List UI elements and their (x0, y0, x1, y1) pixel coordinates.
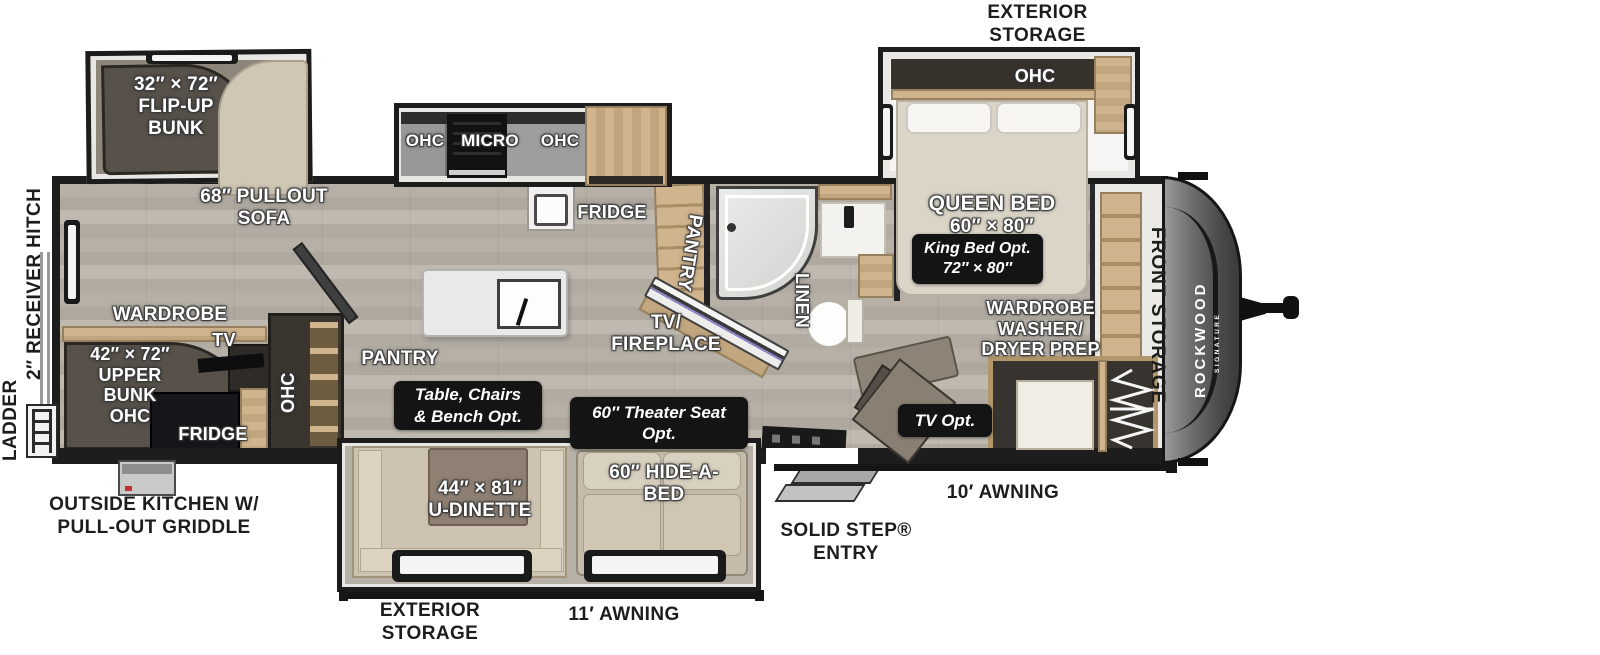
bed-pillow-left (906, 102, 992, 134)
entry-gap (766, 448, 858, 464)
rear-fridge-label: FRIDGE (168, 424, 258, 445)
brand-logo: ROCKWOOD (1192, 240, 1216, 440)
receiver-hitch-label: 2″ RECEIVER HITCH (24, 158, 50, 410)
island-pantry-label: PANTRY (350, 348, 450, 370)
dinette-window (392, 550, 532, 582)
bedroom-window-right (1124, 104, 1137, 160)
linen-label: LINEN (786, 248, 812, 352)
bedroom-window-left (880, 104, 893, 160)
linen-shelves (858, 254, 894, 298)
oven-handle (449, 170, 505, 175)
kitchen-ohc-right-label: OHC (532, 131, 588, 151)
rear-wardrobe-label: WARDROBE (95, 304, 245, 326)
bed-pillow-right (996, 102, 1082, 134)
awning-11-bar (345, 592, 757, 599)
outside-kitchen-griddle (118, 460, 176, 496)
hide-a-bed-label: 60″ HIDE-A- BED (590, 462, 738, 506)
wardrobe-washer-dryer-label: WARDROBE WASHER/ DRYER PREP (948, 298, 1133, 360)
rear-ohc-label: OHC (278, 358, 306, 428)
flip-up-bunk-label: 32″ × 72″ FLIP-UP BUNK (106, 74, 246, 140)
shower-head-icon (727, 223, 736, 232)
kitchen-fridge-cabinet (585, 106, 667, 186)
awning-10-label: 10′ AWNING (930, 482, 1076, 505)
hitch-jack-knob (1283, 296, 1299, 319)
rv-floorplan: ROCKWOOD SIGNATURE FRONT STORAGE OHC QUE… (0, 0, 1600, 655)
front-storage-label: FRONT STORAGE (1142, 196, 1168, 436)
awning-10-knob (1166, 461, 1177, 473)
island-sink (497, 279, 561, 329)
rear-ohc-shelves (310, 322, 338, 446)
cap-bottom-tab (1178, 458, 1208, 466)
wardrobe-divider (1098, 360, 1107, 452)
toilet-tank (846, 298, 864, 344)
pullout-sofa-label: 68″ PULLOUT SOFA (185, 186, 343, 230)
solid-step-lower (774, 484, 865, 502)
vanity-ohc (818, 184, 892, 200)
ladder-icon (26, 404, 58, 458)
kitchen-sink (534, 194, 568, 226)
awning-10-bar (774, 464, 1170, 471)
washer-prep-box (1016, 380, 1094, 450)
rear-tv-label: TV (204, 330, 244, 351)
bedroom-ohc-shelf (891, 89, 1127, 100)
table-chairs-option-badge: Table, Chairs & Bench Opt. (394, 381, 542, 430)
rear-window (64, 220, 80, 304)
kitchen-micro-label: MICRO (452, 131, 528, 151)
queen-bed-label: QUEEN BED (902, 192, 1082, 216)
awning-11-label: 11′ AWNING (548, 604, 700, 627)
awning-11-knob-left (339, 590, 348, 601)
griddle-knob (125, 486, 132, 491)
bedroom-ohc-label: OHC (1005, 66, 1065, 88)
tv-fireplace-label: TV/ FIREPLACE (600, 312, 732, 356)
tv-option-badge: TV Opt. (898, 404, 992, 437)
kitchen-ohc-left-label: OHC (400, 131, 450, 151)
exterior-storage-top-label: EXTERIOR STORAGE (950, 2, 1125, 48)
brand-sub-logo: SIGNATURE (1214, 268, 1226, 418)
u-dinette-label: 44″ × 81″ U-DINETTE (400, 478, 560, 522)
vanity-faucet-icon (844, 206, 854, 228)
ladder-label: LADDER (0, 364, 24, 476)
awning-11-knob-right (755, 590, 764, 601)
griddle-top (122, 464, 172, 474)
exterior-storage-bottom-label: EXTERIOR STORAGE (350, 600, 510, 646)
kitchen-fridge-slot (589, 176, 663, 184)
cap-top-tab (1178, 172, 1208, 180)
theater-seat-option-badge: 60″ Theater Seat Opt. (570, 397, 748, 449)
ladder-rungs (32, 409, 52, 453)
kitchen-fridge-label: FRIDGE (572, 202, 652, 223)
king-bed-option-badge: King Bed Opt. 72″ × 80″ (912, 234, 1043, 284)
solid-step-entry-label: SOLID STEP® ENTRY (762, 520, 930, 566)
outside-kitchen-label: OUTSIDE KITCHEN W/ PULL-OUT GRIDDLE (30, 494, 278, 540)
cooktop-burners (772, 434, 832, 445)
sofa-window (584, 550, 726, 582)
upper-bunk-label: 42″ × 72″ UPPER BUNK OHC (70, 344, 190, 427)
bunk-slide-window (146, 52, 238, 64)
